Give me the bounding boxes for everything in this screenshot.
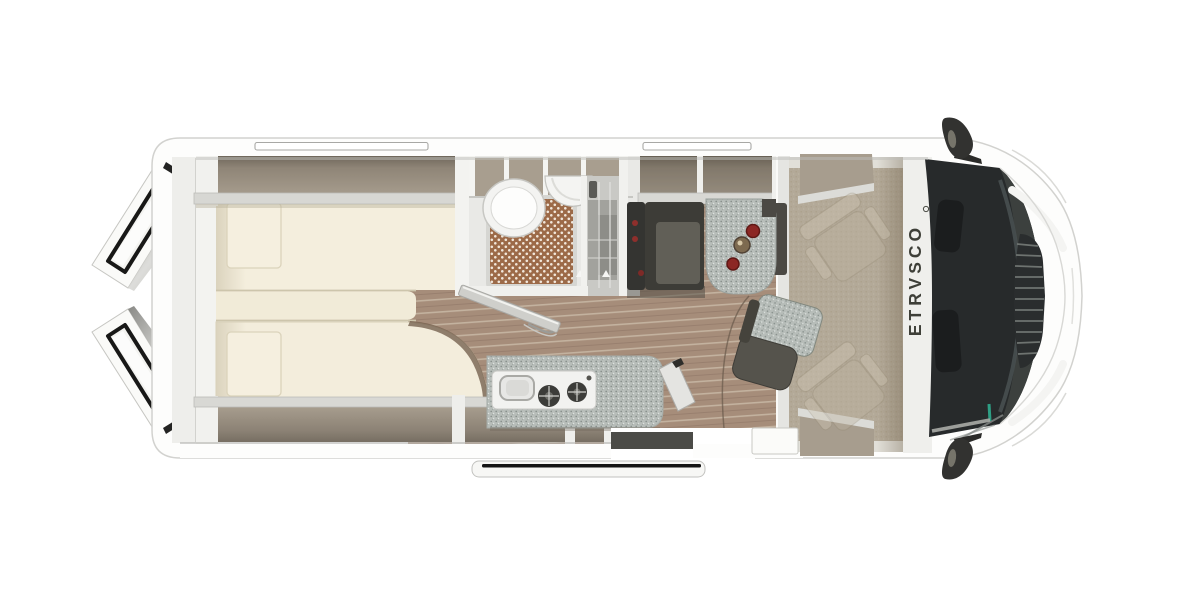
svg-text:ETRVSCO: ETRVSCO [905,224,925,336]
